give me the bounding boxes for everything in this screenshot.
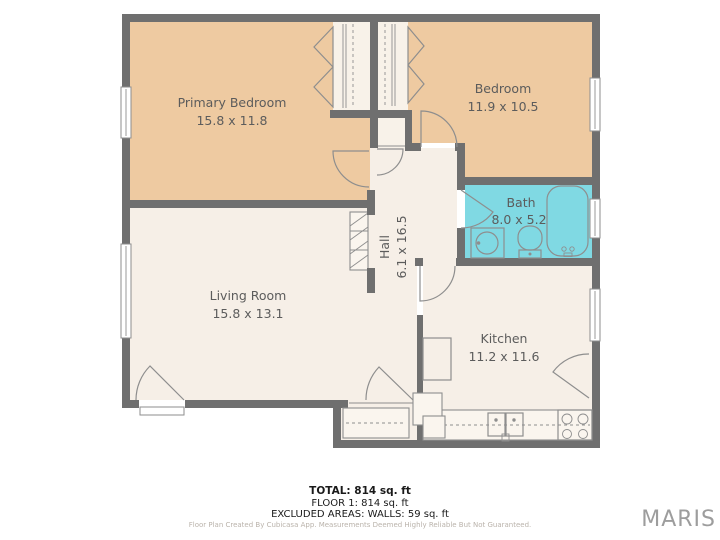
wall-segment	[330, 110, 370, 118]
wall-segment	[370, 14, 378, 148]
wall-segment	[417, 315, 423, 448]
window-icon	[590, 78, 600, 131]
wall-segment	[338, 440, 600, 448]
wall-segment	[367, 190, 375, 215]
wall-segment	[457, 143, 465, 190]
total-area: TOTAL: 814 sq. ft	[0, 486, 720, 498]
toilet-flush-icon	[529, 253, 532, 256]
front-door-step	[140, 407, 184, 415]
room-dims: 11.9 x 10.5	[467, 99, 538, 114]
room-label: Primary Bedroom	[178, 95, 287, 110]
area-summary: TOTAL: 814 sq. ft FLOOR 1: 814 sq. ft EX…	[0, 486, 720, 520]
closet-niche	[378, 118, 405, 148]
window-icon	[121, 244, 131, 338]
wall-segment	[367, 268, 375, 293]
room-label: Bath	[506, 195, 535, 210]
room-living-room	[130, 208, 370, 400]
wall-segment	[415, 258, 423, 266]
disclaimer-text: Floor Plan Created By Cubicasa App. Meas…	[0, 521, 720, 529]
sink-faucet-icon	[477, 241, 481, 245]
room-dims: 15.8 x 11.8	[196, 113, 267, 128]
room-label: Kitchen	[481, 331, 528, 346]
floor-area: FLOOR 1: 814 sq. ft	[0, 498, 720, 509]
floor-plan: Primary Bedroom 15.8 x 11.8 Bedroom 11.9…	[0, 0, 720, 540]
cabinet-icon	[423, 416, 445, 438]
room-label: Living Room	[210, 288, 287, 303]
wall-segment	[412, 143, 421, 151]
excluded-area: EXCLUDED AREAS: WALLS: 59 sq. ft	[0, 509, 720, 520]
wall-segment	[465, 177, 592, 185]
room-label: Hall	[377, 235, 392, 259]
wall-segment	[122, 14, 600, 22]
wall-segment	[122, 14, 130, 408]
stairs-hatch	[350, 212, 368, 270]
window-icon	[590, 199, 600, 238]
room-dims: 8.0 x 5.2	[491, 212, 546, 227]
room-dims: 15.8 x 13.1	[212, 306, 283, 321]
wall-segment	[405, 110, 412, 151]
room-label: Bedroom	[475, 81, 532, 96]
closet-left	[333, 22, 370, 110]
room-dims: 11.2 x 11.6	[468, 349, 539, 364]
wall-segment	[122, 200, 374, 208]
window-icon	[121, 87, 131, 138]
maris-watermark: MARIS	[641, 507, 716, 532]
room-dims: 6.1 x 16.5	[394, 215, 409, 278]
window-icon	[590, 289, 600, 341]
wall-segment	[333, 400, 341, 448]
wall-segment	[370, 110, 408, 118]
faucet-icon	[512, 418, 515, 421]
wall-segment	[456, 258, 600, 266]
closet-right	[378, 22, 408, 110]
floor-plan-image: Primary Bedroom 15.8 x 11.8 Bedroom 11.9…	[0, 0, 720, 540]
faucet-icon	[494, 418, 497, 421]
room-bedroom	[465, 143, 592, 177]
